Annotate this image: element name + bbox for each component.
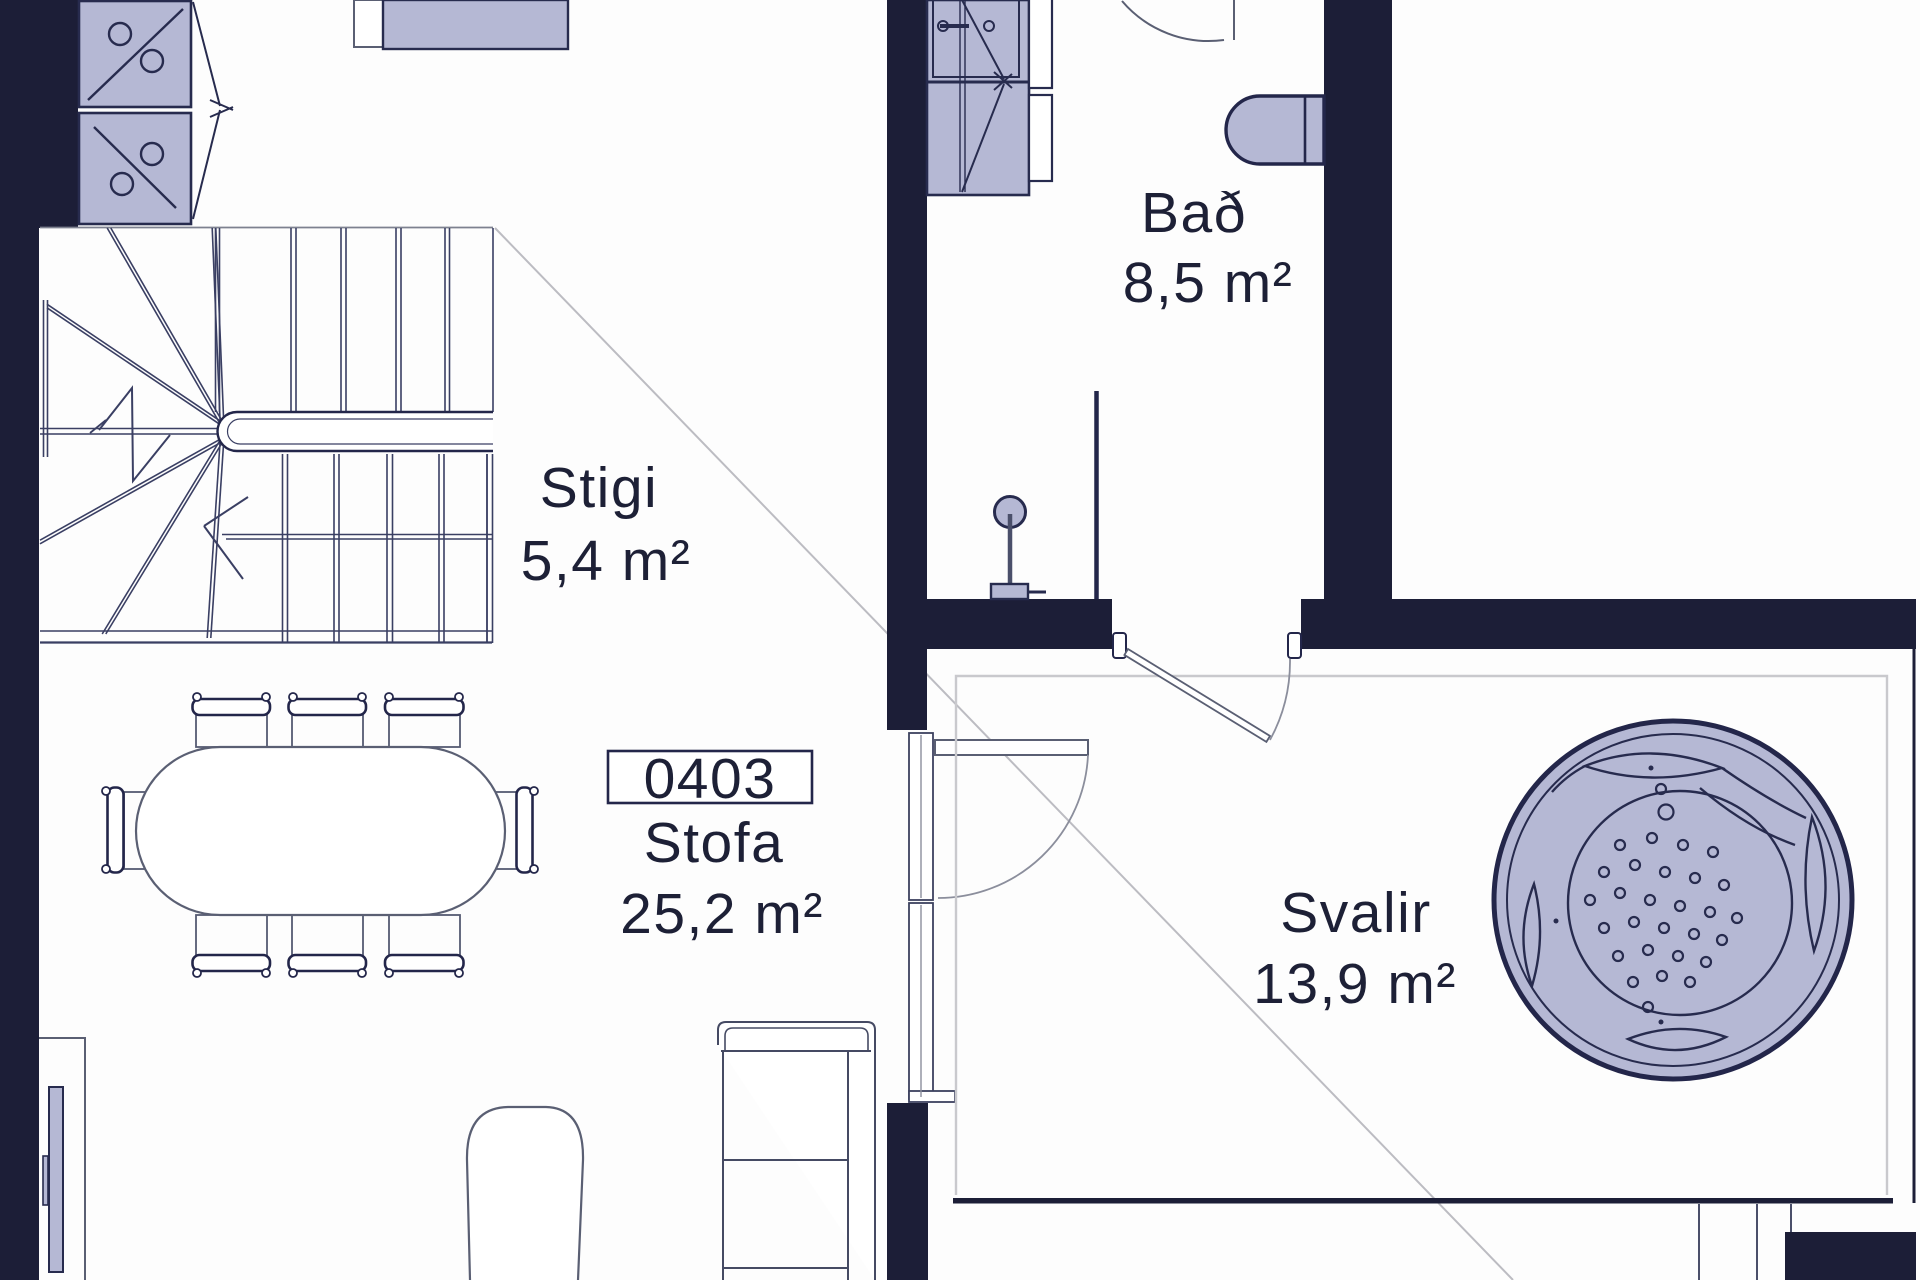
svg-text:13,9 m²: 13,9 m² [1253, 952, 1457, 1016]
svg-text:Stofa: Stofa [644, 811, 785, 875]
svg-text:0403: 0403 [644, 747, 777, 811]
svg-text:Svalir: Svalir [1280, 881, 1432, 945]
svg-text:8,5 m²: 8,5 m² [1123, 251, 1294, 315]
svg-text:Bað: Bað [1141, 181, 1247, 245]
svg-text:5,4 m²: 5,4 m² [521, 529, 692, 593]
svg-text:25,2 m²: 25,2 m² [620, 882, 824, 946]
svg-text:Stigi: Stigi [540, 456, 658, 520]
